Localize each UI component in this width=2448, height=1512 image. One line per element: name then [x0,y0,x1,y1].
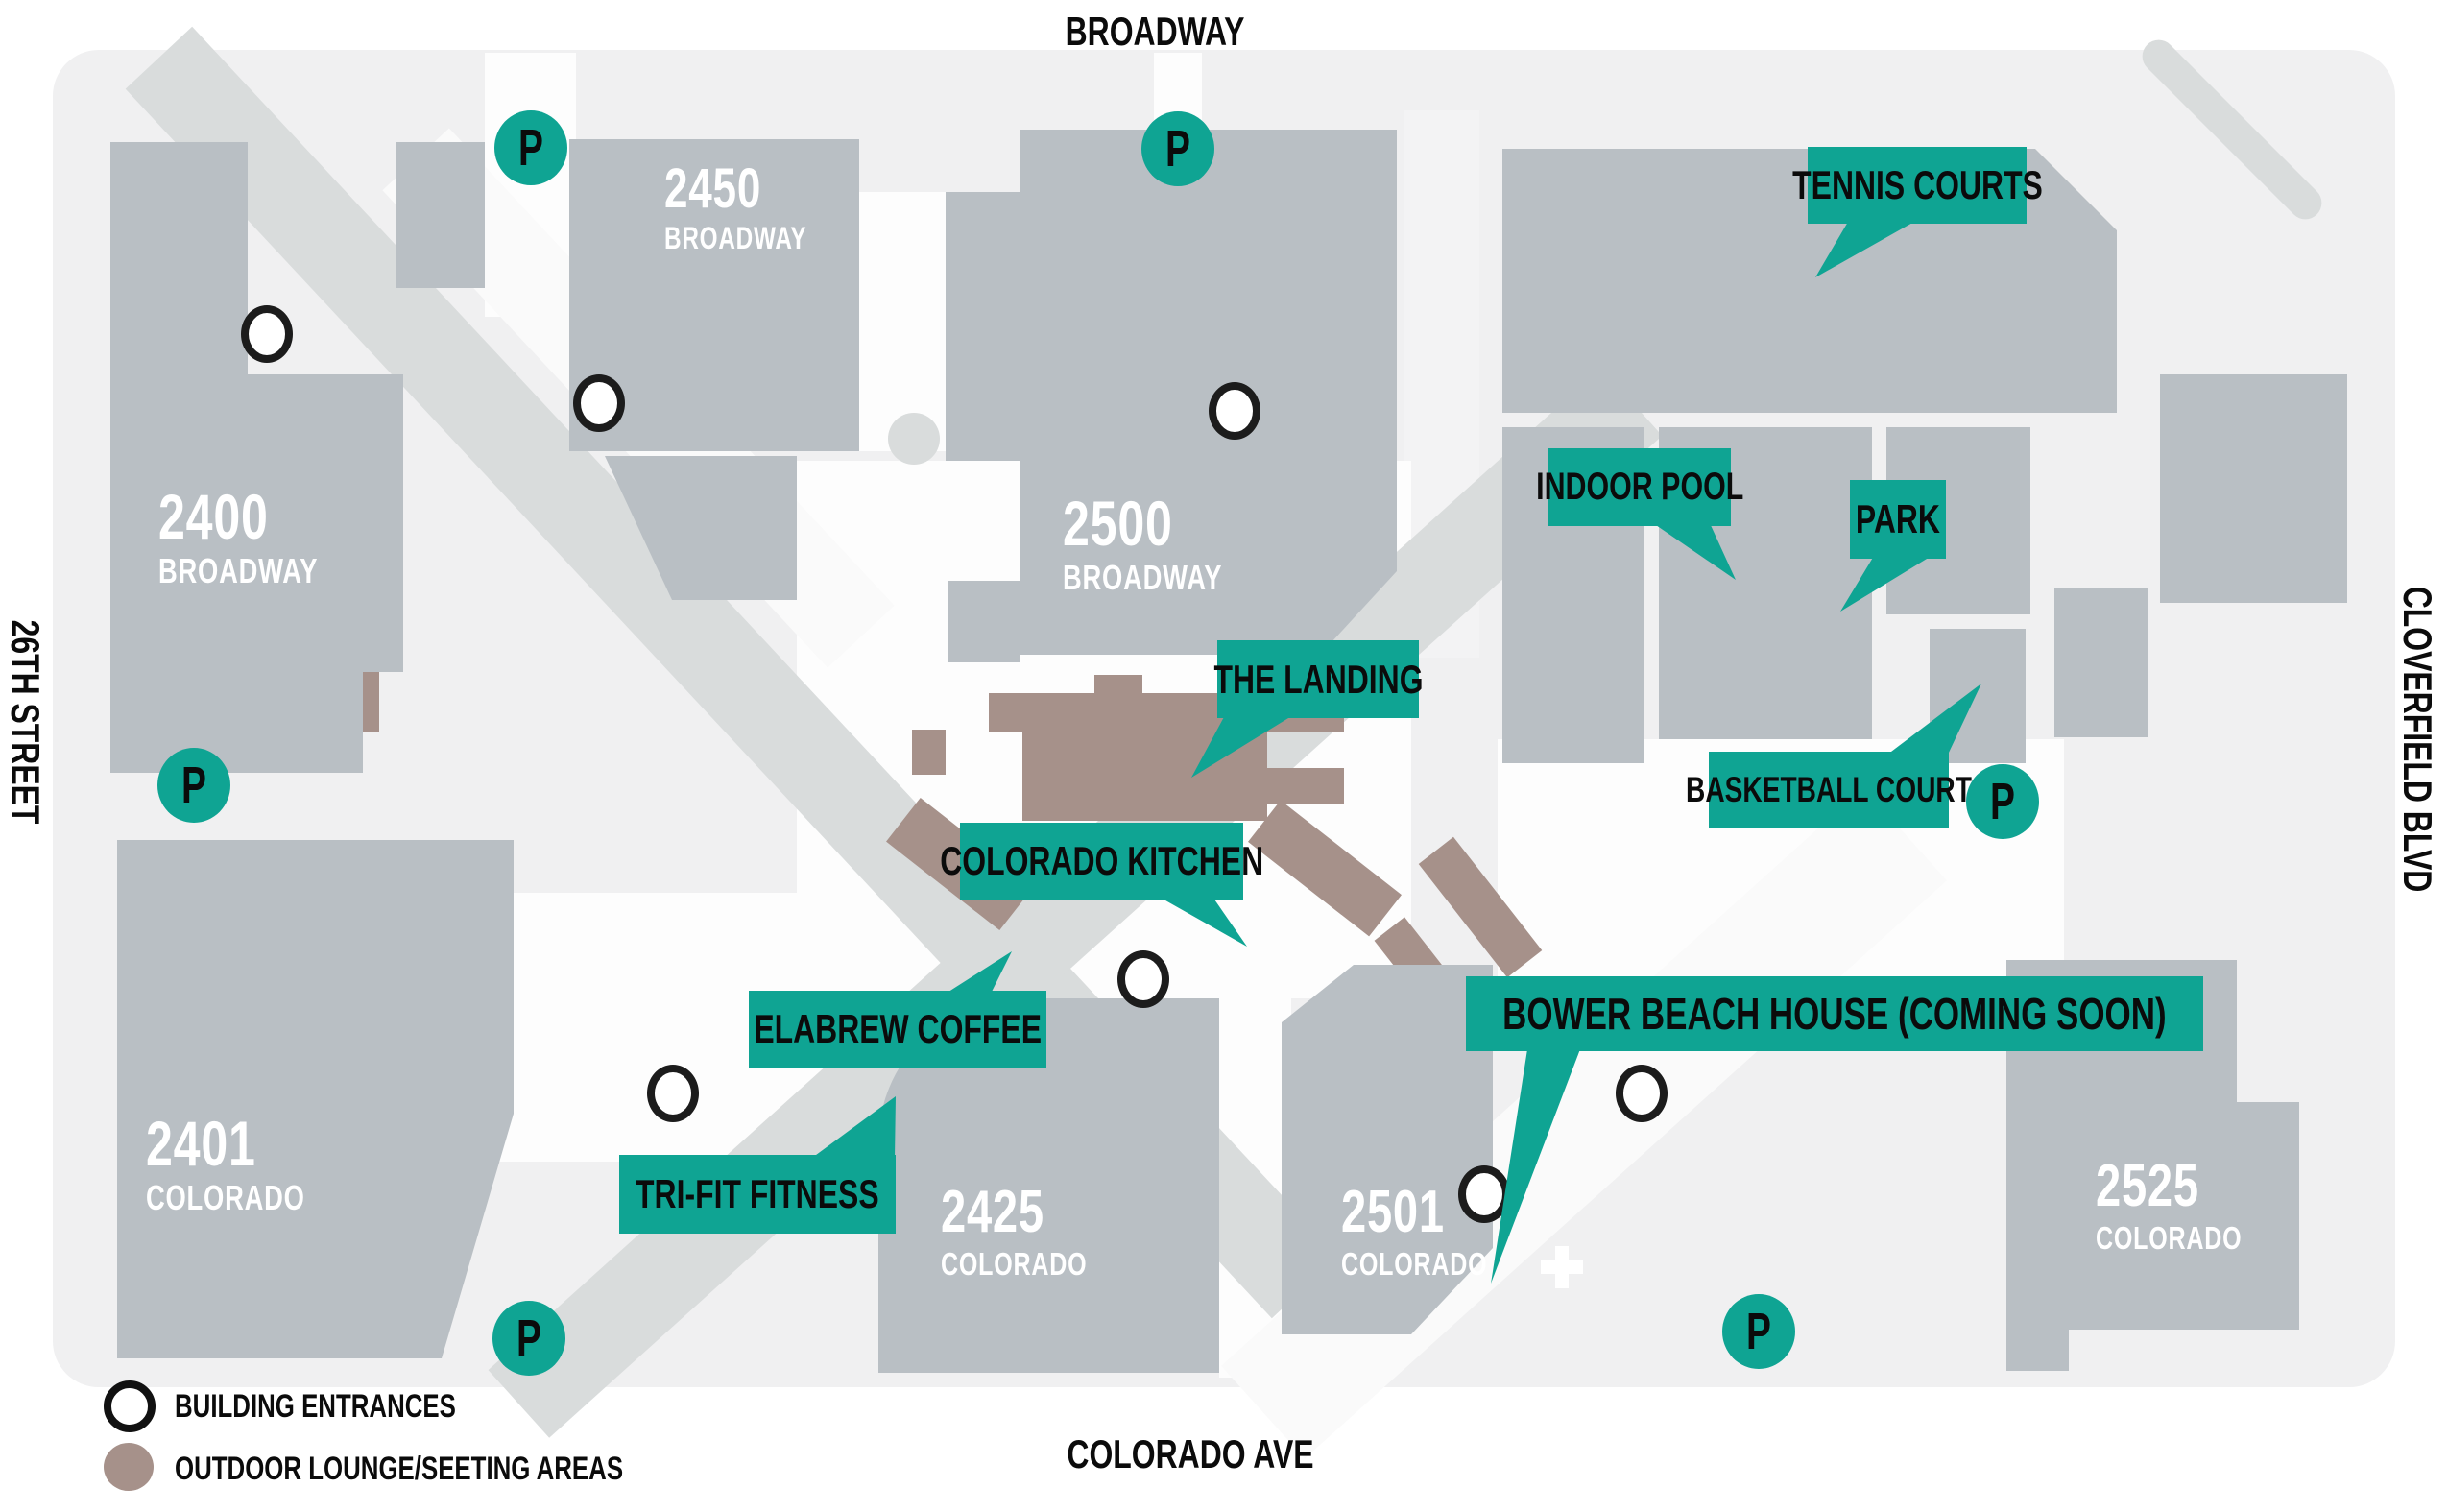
callout-park: PARK [1850,480,1946,559]
building-label-2401: 2401 COLORADO [146,1112,355,1215]
callout-tri-fit-fitness: TRI-FIT FITNESS [619,1155,896,1234]
building-label-2450: 2450 BROADWAY [664,161,852,253]
building-entrance-marker [573,374,625,432]
building-entrance-marker [647,1065,699,1122]
parking-marker: P [492,1301,565,1376]
callout-bower-beach-house: BOWER BEACH HOUSE (COMING SOON) [1466,976,2203,1051]
street-label-cloverfield-blvd: CLOVERFIELD BLVD [2397,538,2437,940]
building-label-2525: 2525 COLORADO [2096,1157,2289,1254]
legend-label-lounge: OUTDOOR LOUNGE/SEETING AREAS [175,1452,765,1485]
building-label-2500: 2500 BROADWAY [1063,492,1273,595]
parking-marker: P [494,110,567,185]
path-circle-1 [888,413,940,465]
building-2401 [117,840,514,1358]
street-label-broadway: BROADWAY [1037,12,1273,52]
building-entrance-marker [1458,1165,1510,1223]
building-label-2400: 2400 BROADWAY [158,485,369,588]
callout-colorado-kitchen: COLORADO KITCHEN [960,823,1243,900]
legend-label-entrances: BUILDING ENTRANCES [175,1390,544,1423]
building-entrance-marker [1117,950,1169,1008]
building-2500-sw-wing [948,581,1020,662]
walkway-vertical-1 [859,192,946,451]
building-entrance-icon [104,1380,156,1432]
street-label-colorado-ave: COLORADO AVE [1028,1434,1353,1475]
building-label-2425: 2425 COLORADO [941,1183,1134,1280]
parking-marker: P [1722,1294,1795,1369]
building-entrance-marker [1209,382,1260,440]
building-2400-wing [396,142,485,288]
building-entrance-marker [1616,1065,1668,1122]
basketball-court-area [1930,629,2026,763]
east-block-small [2054,588,2148,737]
lounge-plaza-main [1022,732,1267,821]
lounge-plaza-arm [1267,768,1344,804]
callout-the-landing: THE LANDING [1217,640,1419,718]
outdoor-lounge-icon [104,1443,154,1491]
parking-marker: P [1966,764,2039,839]
callout-basketball-court: BASKETBALL COURT [1709,752,1949,828]
building-entrance-marker [241,305,293,363]
plus-icon [1541,1260,1583,1274]
street-label-26th-street: 26TH STREET [5,588,45,856]
parking-marker: P [157,748,230,823]
callout-indoor-pool: INDOOR POOL [1548,448,1731,526]
callout-tennis-courts: TENNIS COURTS [1808,147,2027,224]
lounge-plaza-tab [1094,675,1142,696]
building-2500-west-wing [946,192,1020,461]
lounge-small-west [912,730,946,775]
east-block [2160,374,2347,603]
callout-elabrew-coffee: ELABREW COFFEE [749,991,1046,1068]
parking-marker: P [1141,111,1214,186]
